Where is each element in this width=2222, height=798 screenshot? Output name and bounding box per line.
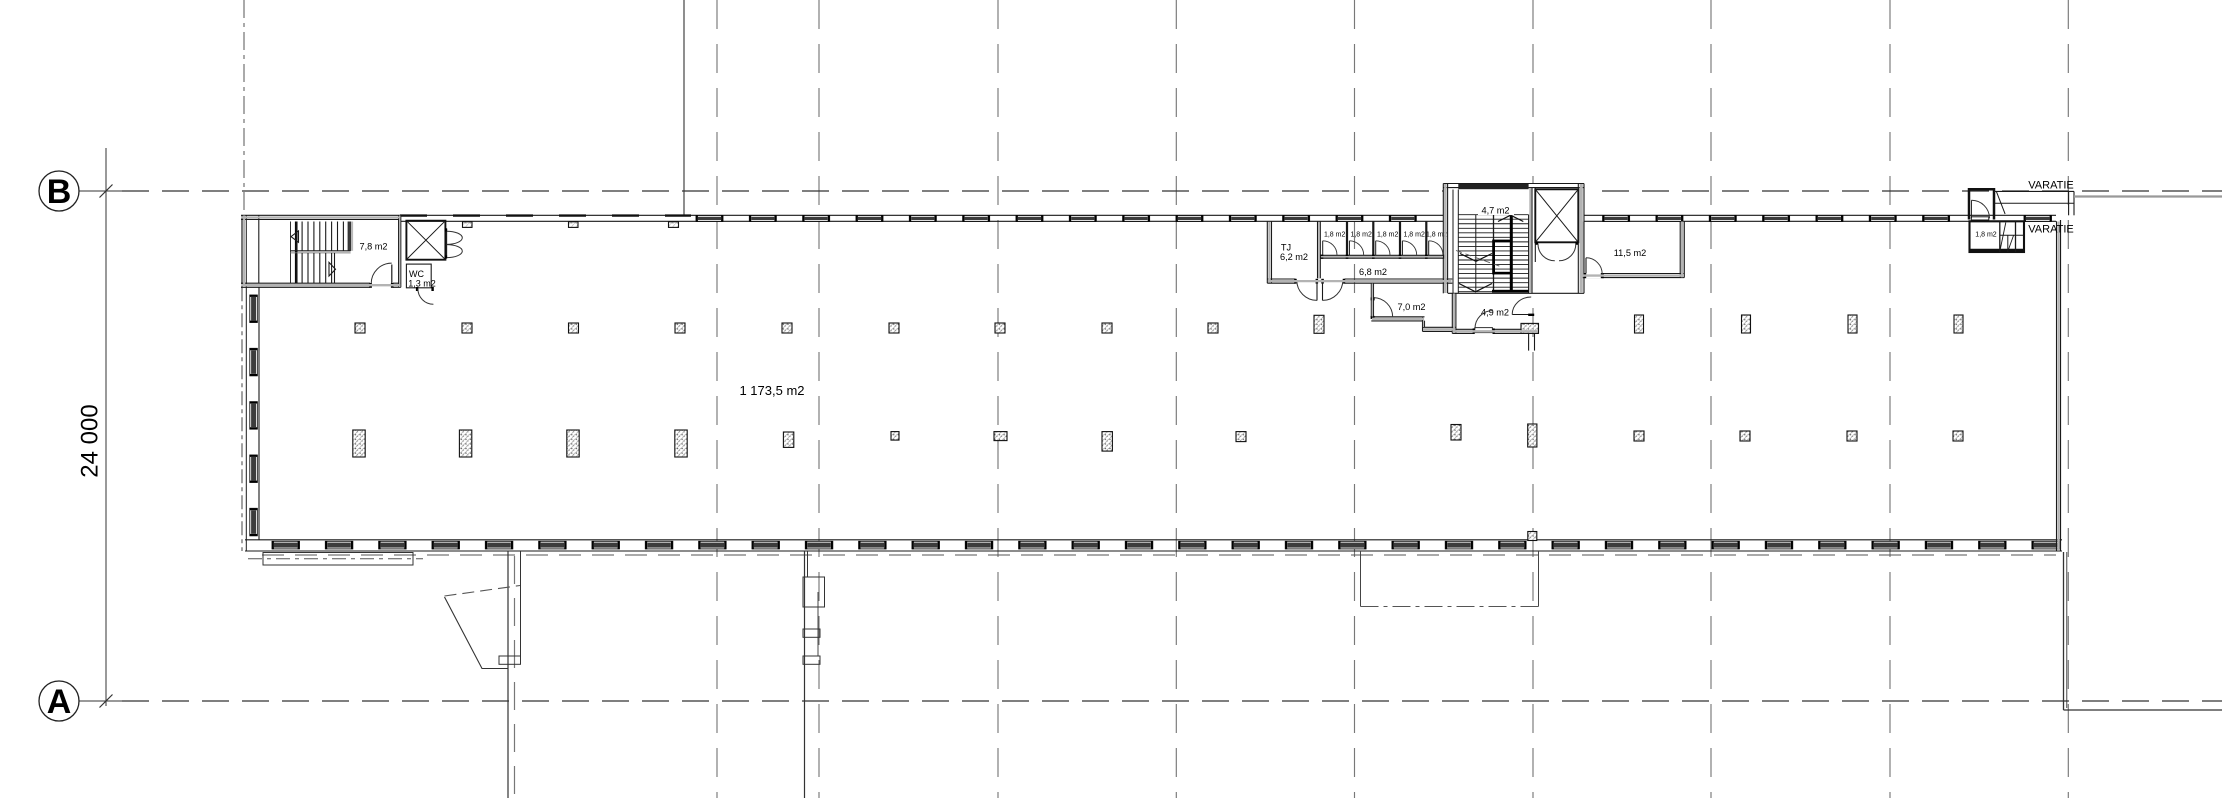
- svg-text:6,2 m2: 6,2 m2: [1280, 252, 1308, 262]
- svg-text:1,8 m2: 1,8 m2: [1403, 232, 1425, 239]
- svg-text:1,8 m2: 1,8 m2: [1350, 232, 1372, 239]
- svg-text:B: B: [47, 173, 72, 211]
- svg-text:7,0 m2: 7,0 m2: [1397, 302, 1425, 312]
- svg-text:6,8 m2: 6,8 m2: [1359, 267, 1387, 277]
- svg-text:A: A: [47, 683, 72, 721]
- svg-text:1,8 m2: 1,8 m2: [1324, 232, 1346, 239]
- svg-text:VARATIE: VARATIE: [2028, 180, 2073, 192]
- svg-text:4,7 m2: 4,7 m2: [1481, 206, 1509, 216]
- svg-text:11,5 m2: 11,5 m2: [1614, 248, 1647, 258]
- svg-text:VARATIE: VARATIE: [2028, 224, 2073, 236]
- svg-text:1,8 m2: 1,8 m2: [1377, 232, 1399, 239]
- svg-text:1 173,5 m2: 1 173,5 m2: [739, 383, 804, 398]
- svg-text:7,8 m2: 7,8 m2: [359, 241, 387, 251]
- svg-text:1,8 m2: 1,8 m2: [1975, 232, 1997, 239]
- svg-text:24 000: 24 000: [77, 404, 104, 477]
